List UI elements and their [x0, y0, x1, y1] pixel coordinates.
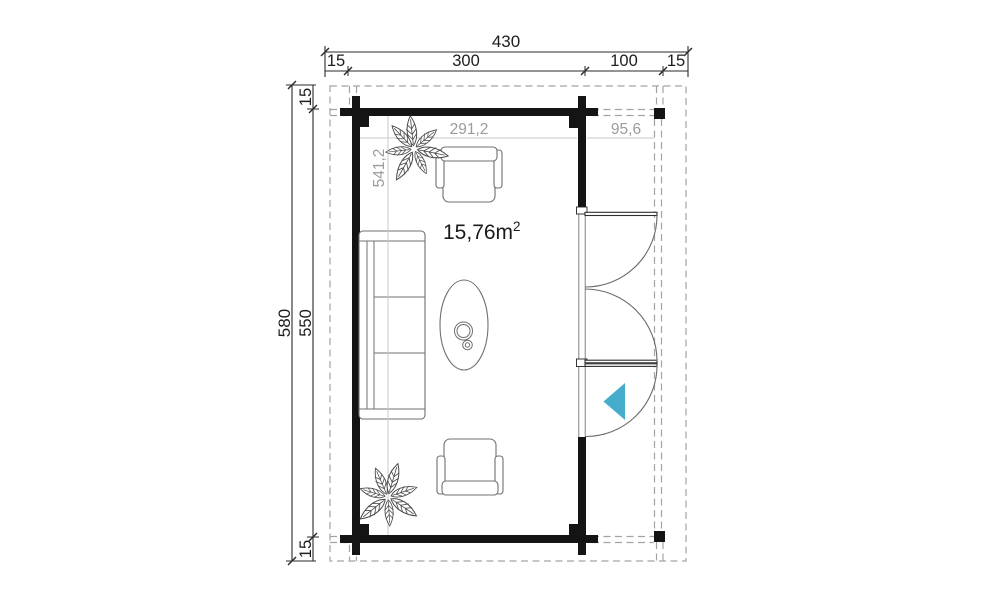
floor-plan-canvas: 430 15 300 100 15 580 15 550 15	[0, 0, 1000, 600]
dim-total-width-label: 430	[492, 32, 520, 51]
floor-area-value: 15,76m	[443, 221, 513, 244]
coffee-table	[440, 280, 488, 370]
floor-area-superscript: 2	[513, 219, 521, 234]
dimension-top-segments: 15 300 100 15	[325, 52, 688, 76]
floor-plan-page: 430 15 300 100 15 580 15 550 15	[0, 0, 1000, 600]
armchair-bottom	[437, 439, 503, 495]
doors	[577, 207, 658, 437]
dim-right-overhang-top-label: 15	[667, 52, 685, 70]
porch-post-top	[654, 108, 665, 119]
plant-bottom-left-icon	[357, 462, 419, 526]
dim-left-overhang-top-label: 15	[327, 52, 345, 70]
wall-bottom	[352, 535, 586, 543]
dim-porch-width-label: 100	[610, 52, 638, 70]
double-door	[585, 212, 657, 363]
dim-total-depth-label: 580	[275, 309, 294, 337]
entrance-arrow-icon	[604, 383, 626, 420]
dim-porch-depth-label: 95,6	[611, 121, 641, 138]
porch-post-bottom	[654, 531, 665, 542]
dim-room-width-label: 300	[452, 52, 480, 70]
wall-top	[352, 108, 586, 116]
dim-inner-depth-label: 550	[297, 309, 315, 337]
dim-interior-depth-label: 541,2	[371, 149, 388, 188]
dim-bottom-overhang-label: 15	[297, 540, 315, 558]
dim-top-overhang-label: 15	[297, 88, 315, 106]
sofa	[359, 231, 425, 419]
dim-interior-width-label: 291,2	[450, 121, 489, 138]
floor-area-label: 15,76m2	[443, 219, 521, 244]
dimension-left-segments: 15 550 15	[297, 85, 319, 561]
